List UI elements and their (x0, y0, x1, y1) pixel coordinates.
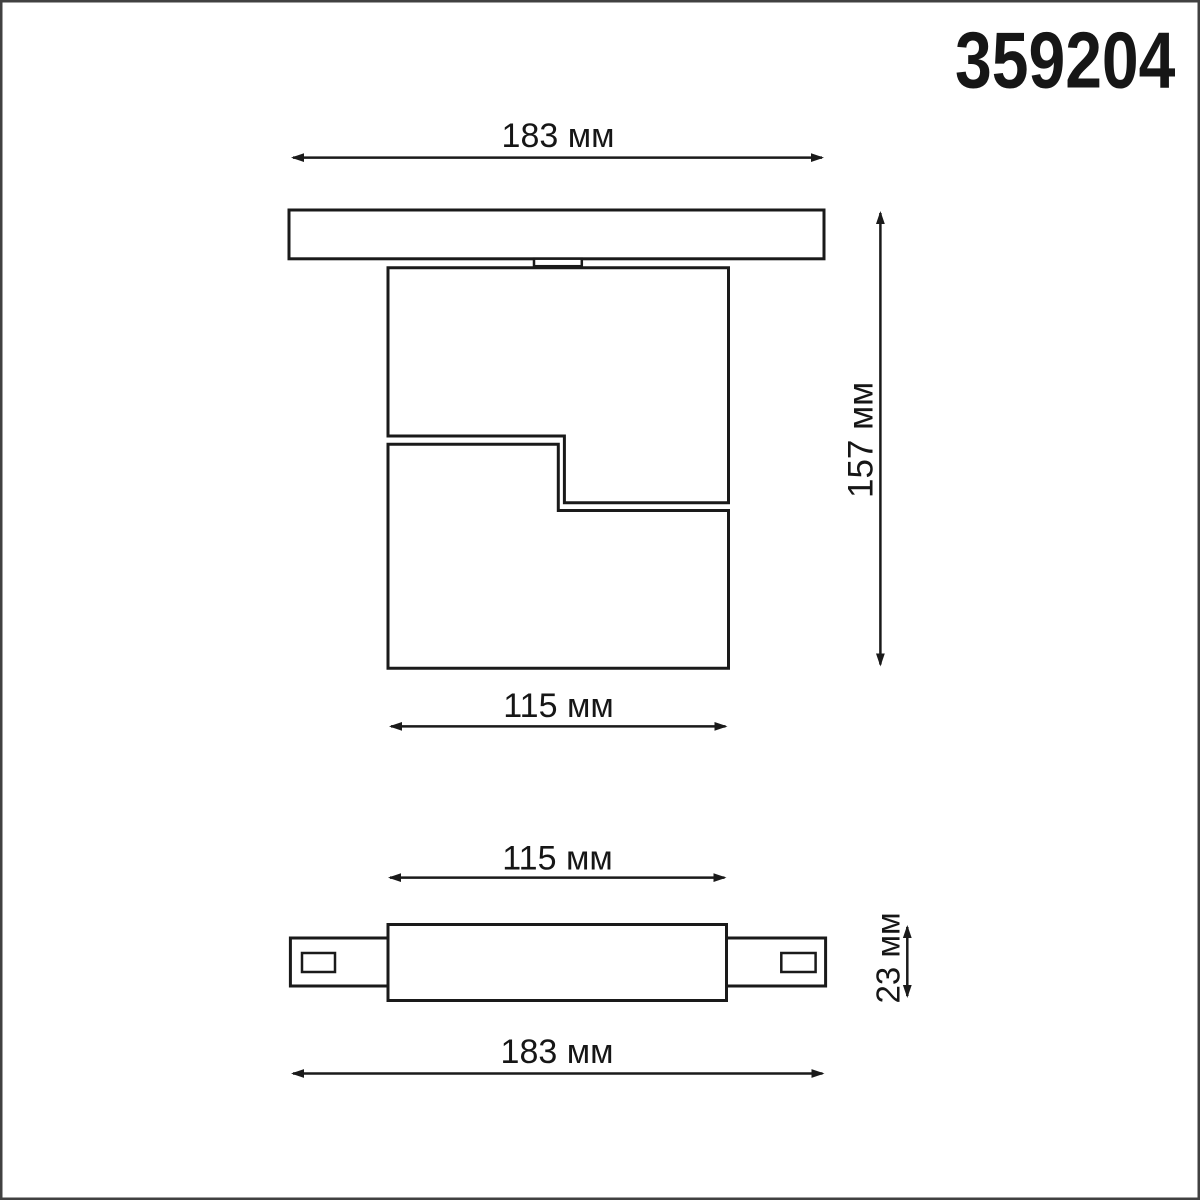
svg-text:115 мм: 115 мм (503, 687, 613, 725)
svg-text:183 мм: 183 мм (502, 117, 615, 155)
svg-text:115 мм: 115 мм (502, 840, 612, 878)
svg-text:359204: 359204 (955, 16, 1176, 105)
svg-text:23 мм: 23 мм (870, 912, 907, 1003)
svg-text:157 мм: 157 мм (842, 382, 881, 498)
svg-text:183 мм: 183 мм (501, 1033, 614, 1071)
